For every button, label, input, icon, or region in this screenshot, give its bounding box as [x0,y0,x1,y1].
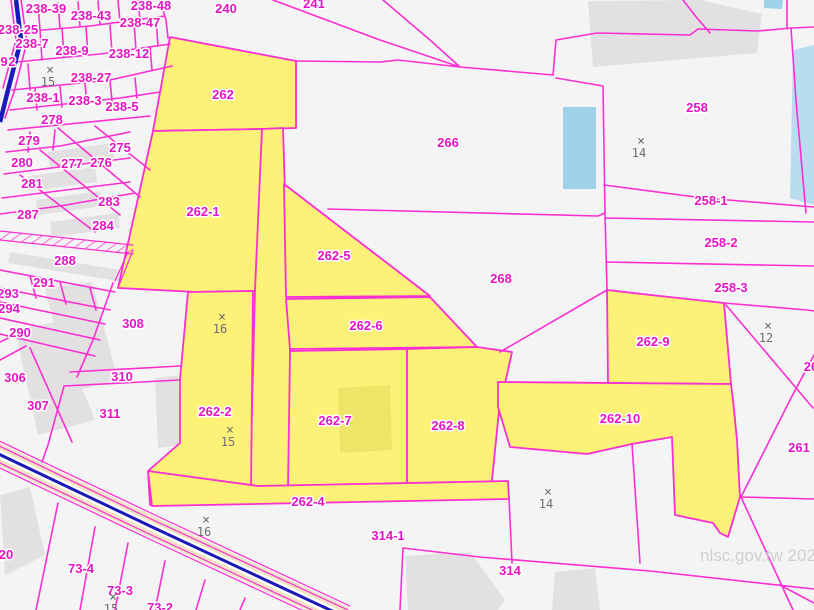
control-point-number: 14 [539,497,553,511]
parcel-label-262-5: 262-5 [317,248,350,263]
cadastral-map-canvas[interactable]: 238-39238-43238-48238-47238-25238-7238-9… [0,0,814,610]
water-chip-topright [764,0,783,9]
parcel-label-277: 277 [61,156,83,171]
control-point-number: 15 [41,75,55,89]
parcel-label-238-25: 238-25 [0,22,38,37]
parcel-label-291: 291 [33,275,55,290]
parcel-label-20: 20 [0,547,13,562]
parcel-label-238-5: 238-5 [105,99,138,114]
parcel-label-262-7: 262-7 [318,413,351,428]
parcel-262-10[interactable] [498,382,740,537]
parcel-label-258-3: 258-3 [714,280,747,295]
parcel-label-262-1: 262-1 [186,204,219,219]
parcel-label-262-4: 262-4 [291,494,325,509]
parcel-label-238-48: 238-48 [131,0,171,13]
parcel-label-280: 280 [11,155,33,170]
highlighted-parcels-layer [118,37,740,537]
parcel-label-261: 261 [788,440,810,455]
control-point-number: 16 [213,322,227,336]
building-footprint [155,375,182,448]
parcel-label-258-2: 258-2 [704,235,737,250]
parcel-label-258-1: 258-1 [694,193,727,208]
parcel-label-262-6: 262-6 [349,318,382,333]
parcel-label-268: 268 [490,271,512,286]
control-point-number: 12 [759,331,773,345]
parcel-label-294: 294 [0,301,21,316]
parcel-label-9: 9 [0,54,7,69]
parcel-label-73-4: 73-4 [68,561,95,576]
cadastral-map-viewport[interactable]: 238-39238-43238-48238-47238-25238-7238-9… [0,0,814,610]
parcel-label-262-2: 262-2 [198,404,231,419]
parcel-label-241: 241 [303,0,325,11]
parcel-label-238-9: 238-9 [55,43,88,58]
parcel-label-279: 279 [18,133,40,148]
parcel-label-308: 308 [122,316,144,331]
parcel-label-276: 276 [90,155,112,170]
parcel-label-262-10: 262-10 [600,411,640,426]
parcel-label-26: 26 [804,359,814,374]
parcel-label-314: 314 [499,563,521,578]
parcel-label-314-1: 314-1 [371,528,404,543]
parcel-label-275: 275 [109,140,131,155]
parcel-262-5[interactable] [284,184,430,297]
parcel-label-262: 262 [212,87,234,102]
parcel-label-293: 293 [0,286,19,301]
parcel-label-281: 281 [21,176,43,191]
parcel-label-2: 2 [8,54,15,69]
parcel-label-288: 288 [54,253,76,268]
building-footprint [405,552,505,610]
parcel-label-262-8: 262-8 [431,418,464,433]
parcel-label-290: 290 [9,325,31,340]
parcel-label-306: 306 [4,370,26,385]
parcel-label-311: 311 [100,406,121,421]
parcel-label-310: 310 [111,369,133,384]
parcel-label-287: 287 [17,207,39,222]
parcel-label-238-47: 238-47 [120,15,160,30]
boundary-lines-240-241 [273,0,460,67]
parcel-label-240: 240 [215,1,237,16]
parcel-label-238-3: 238-3 [68,93,101,108]
parcel-label-262-9: 262-9 [636,334,669,349]
water-rect [563,107,596,189]
control-point-number: 14 [632,146,646,160]
parcel-label-278: 278 [41,112,63,127]
parcel-label-284: 284 [92,218,114,233]
parcel-label-238-1: 238-1 [26,90,59,105]
parcel-label-266: 266 [437,135,459,150]
parcel-label-283: 283 [98,194,120,209]
parcel-label-307: 307 [27,398,49,413]
control-point-number: 15 [104,602,118,610]
parcel-label-238-27: 238-27 [71,70,111,85]
control-point-number: 15 [221,435,235,449]
parcel-262[interactable] [153,37,296,131]
parcel-label-238-12: 238-12 [109,46,149,61]
parcel-label-258: 258 [686,100,708,115]
parcel-label-238-39: 238-39 [26,1,66,16]
parcel-label-73-2: 73-2 [147,600,173,610]
parcel-label-238-43: 238-43 [71,8,111,23]
building-footprint [552,568,600,610]
parcel-label-238-7: 238-7 [15,36,48,51]
watermark: nlsc.gov.tw 202 [700,546,814,565]
control-point-number: 16 [197,525,211,539]
